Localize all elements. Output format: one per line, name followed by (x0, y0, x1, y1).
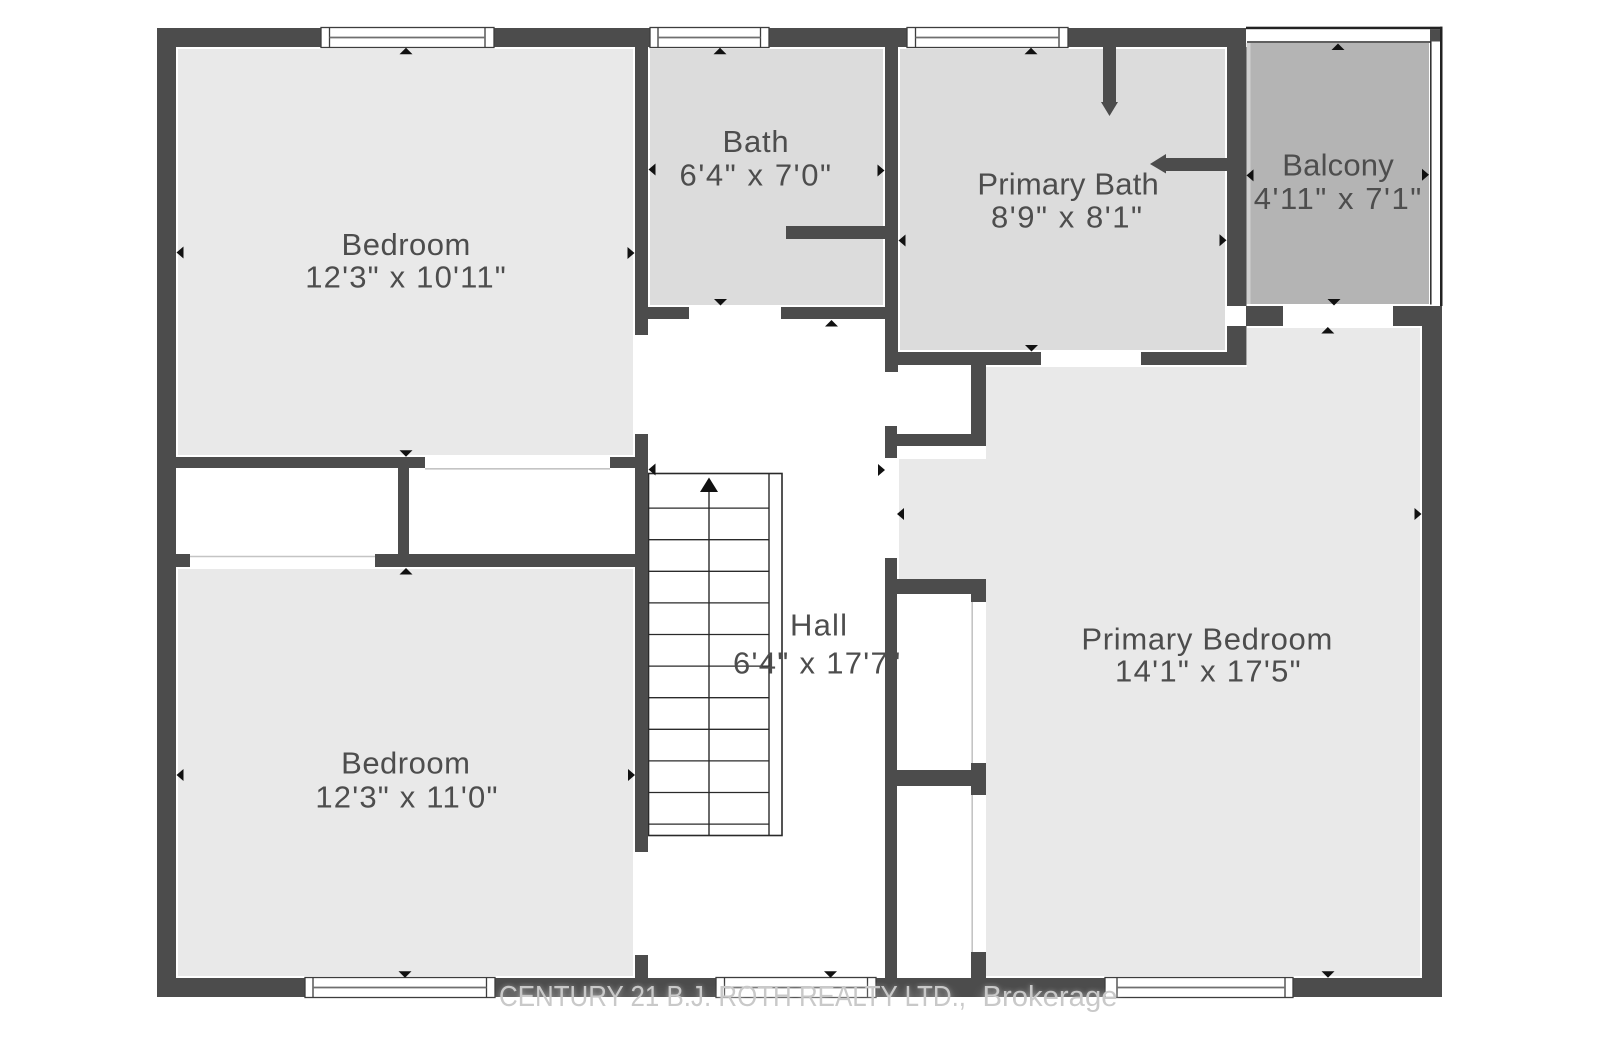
svg-text:Bedroom: Bedroom (342, 227, 471, 262)
svg-text:CENTURY 21 B.J. ROTH REALTY LT: CENTURY 21 B.J. ROTH REALTY LTD., (499, 981, 966, 1013)
svg-text:12'3" x 11'0": 12'3" x 11'0" (315, 780, 498, 815)
svg-text:Hall: Hall (790, 608, 848, 643)
svg-text:6'4" x 7'0": 6'4" x 7'0" (680, 158, 833, 193)
svg-text:12'3" x 10'11": 12'3" x 10'11" (305, 260, 507, 295)
svg-text:8'9" x 8'1": 8'9" x 8'1" (991, 199, 1144, 234)
svg-text:Bedroom: Bedroom (341, 746, 470, 781)
svg-text:Bath: Bath (723, 124, 790, 159)
svg-text:14'1" x 17'5": 14'1" x 17'5" (1115, 654, 1302, 689)
svg-text:4'11" x 7'1": 4'11" x 7'1" (1254, 181, 1423, 216)
svg-text:6'4" x 17'7": 6'4" x 17'7" (733, 646, 901, 681)
svg-text:Primary Bath: Primary Bath (977, 166, 1159, 201)
svg-text:Brokerage: Brokerage (983, 981, 1118, 1013)
svg-text:Balcony: Balcony (1282, 147, 1394, 182)
svg-text:Primary Bedroom: Primary Bedroom (1081, 622, 1333, 657)
